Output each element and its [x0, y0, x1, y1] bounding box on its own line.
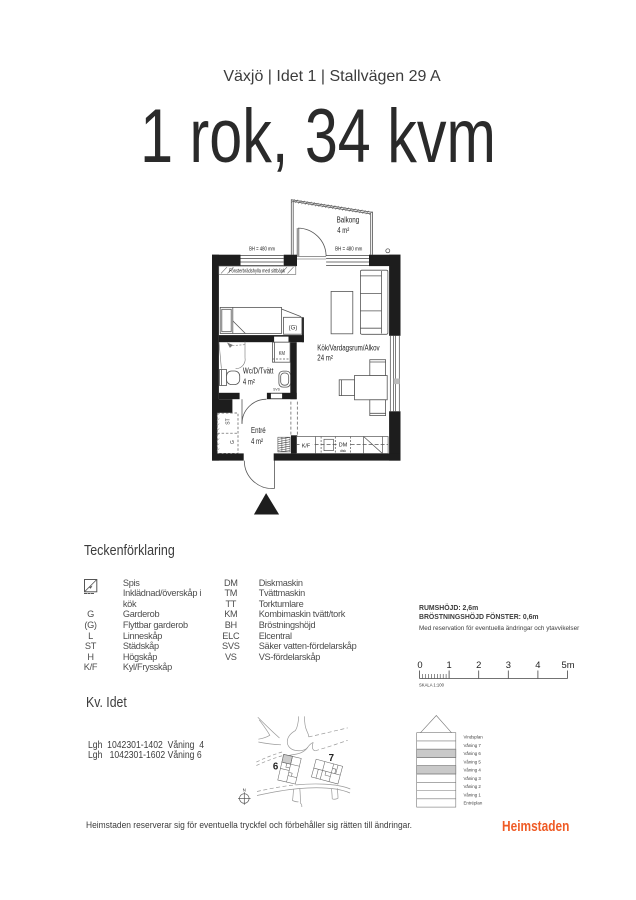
svg-text:Vindsplan: Vindsplan	[464, 735, 484, 740]
svg-text:4 m²: 4 m²	[337, 226, 349, 235]
svg-text:K/F: K/F	[302, 443, 311, 449]
svg-text:Våning 3: Våning 3	[464, 776, 482, 781]
svg-text:DM: DM	[339, 443, 348, 449]
svg-text:4: 4	[535, 659, 540, 670]
svg-text:Våning 7: Våning 7	[464, 743, 482, 748]
svg-text:Våning 2: Våning 2	[464, 784, 482, 789]
svg-text:Wc/D/Tvätt: Wc/D/Tvätt	[243, 367, 274, 376]
svg-text:Entréplan: Entréplan	[464, 801, 483, 806]
svg-text:Kök/Vardagsrum/Alkov: Kök/Vardagsrum/Alkov	[317, 343, 379, 352]
svg-text:KM: KM	[279, 351, 285, 357]
svg-text:6: 6	[273, 762, 279, 773]
svg-text:(G): (G)	[289, 324, 298, 331]
svg-text:24 m²: 24 m²	[317, 354, 333, 363]
svg-text:4 m²: 4 m²	[251, 437, 263, 446]
svg-text:Våning 4: Våning 4	[464, 768, 482, 773]
svg-text:BH = 480 mm: BH = 480 mm	[249, 246, 275, 252]
svg-text:N: N	[243, 788, 246, 793]
svg-text:BH = 480 mm: BH = 480 mm	[335, 246, 362, 252]
svg-text:2: 2	[476, 659, 481, 670]
svg-text:ST: ST	[226, 418, 232, 424]
svg-text:1: 1	[446, 659, 451, 670]
svg-text:4 m²: 4 m²	[243, 378, 255, 387]
svg-text:Entré: Entré	[251, 426, 266, 435]
svg-text:Våning 5: Våning 5	[464, 759, 482, 764]
svg-text:Balkong: Balkong	[337, 216, 360, 225]
svg-text:5m: 5m	[561, 659, 574, 670]
svg-text:3: 3	[506, 659, 511, 670]
svg-text:0: 0	[417, 659, 422, 670]
svg-text:SVS: SVS	[273, 388, 281, 392]
svg-text:G: G	[230, 440, 236, 444]
svg-text:Våning 1: Våning 1	[464, 792, 482, 797]
svg-text:SKALA 1:100: SKALA 1:100	[419, 683, 445, 688]
svg-text:disk: disk	[340, 449, 346, 453]
svg-text:7: 7	[329, 753, 334, 764]
svg-text:Våning 6: Våning 6	[464, 751, 482, 756]
svg-text:Fönsterbrädshylla med sittbänk: Fönsterbrädshylla med sittbänk	[229, 269, 285, 275]
